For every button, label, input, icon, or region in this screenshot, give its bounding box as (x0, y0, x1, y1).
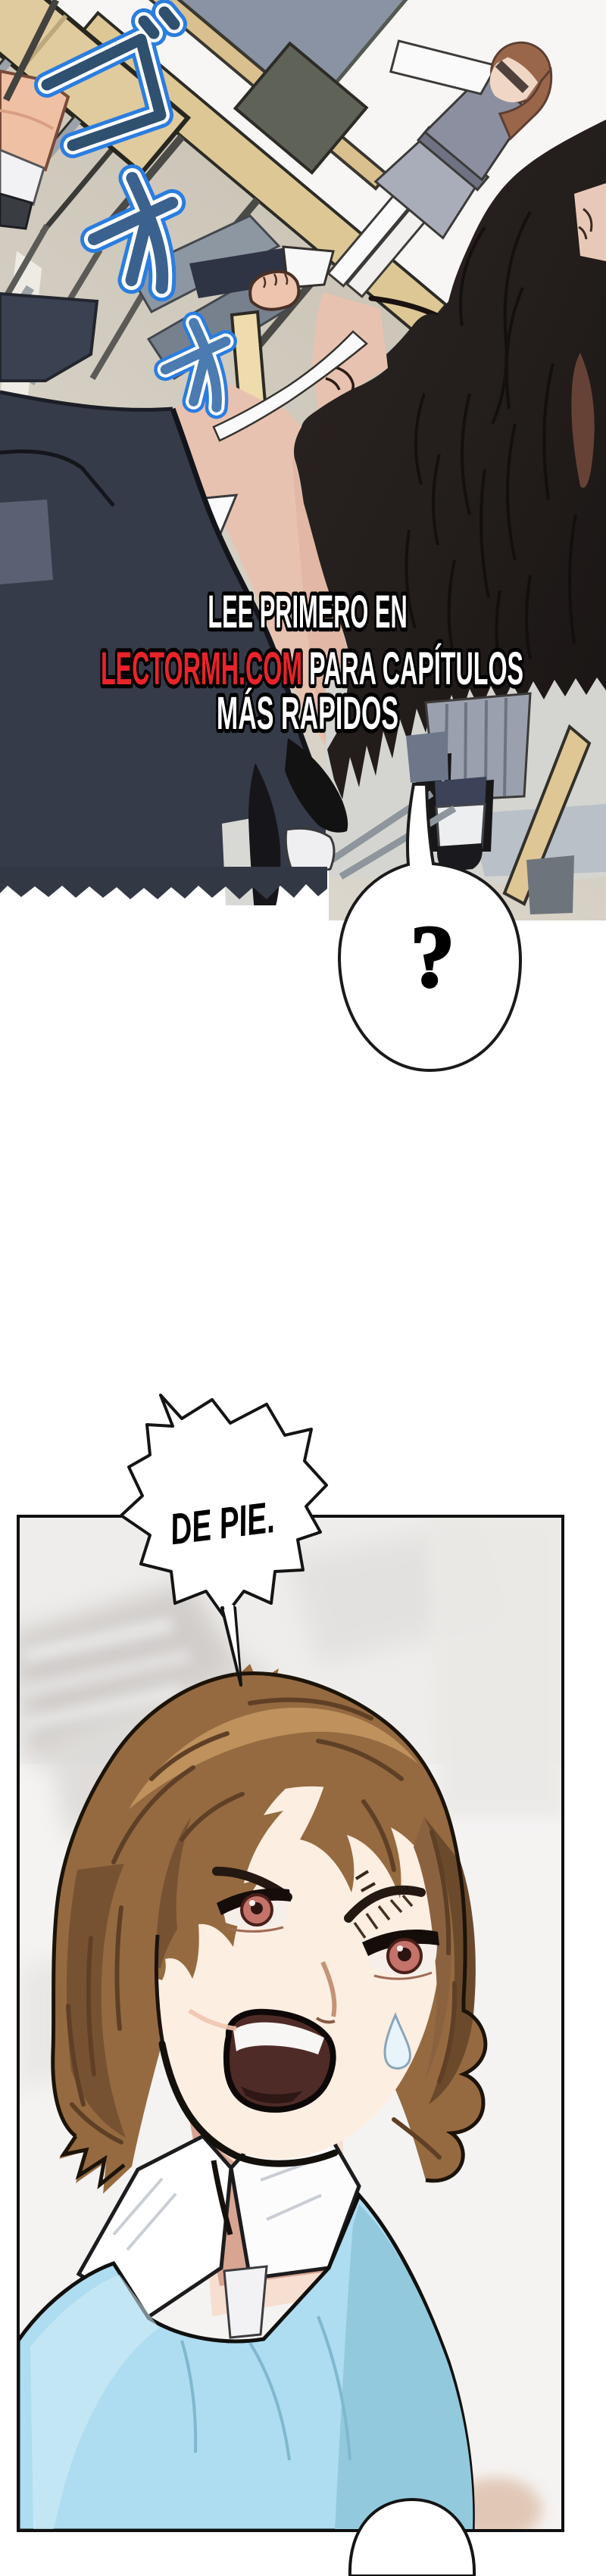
svg-text:LECTORMH.COM PARA CAPÍTULOS: LECTORMH.COM PARA CAPÍTULOS (101, 643, 523, 694)
svg-text:MÁS RAPIDOS: MÁS RAPIDOS (217, 687, 398, 739)
svg-text:?: ? (411, 907, 455, 1006)
svg-text:LEE PRIMERO EN: LEE PRIMERO EN (208, 587, 407, 638)
